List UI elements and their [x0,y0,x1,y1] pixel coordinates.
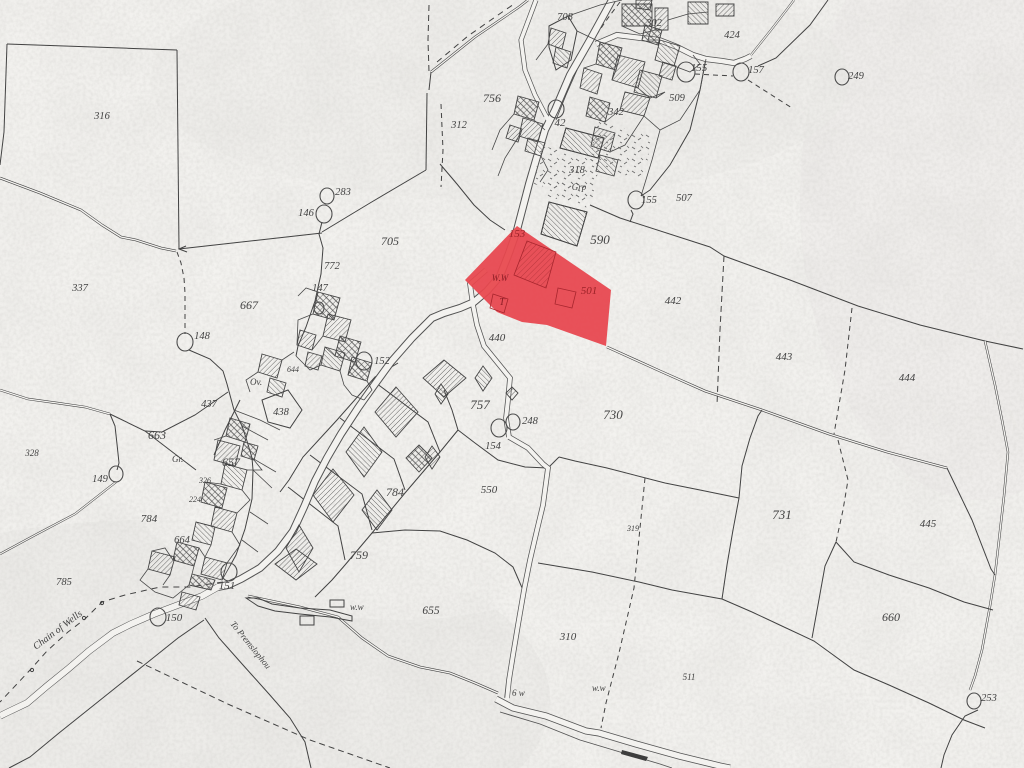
svg-text:507: 507 [676,193,693,204]
svg-text:6 w: 6 w [512,688,525,698]
svg-text:437: 437 [201,399,218,410]
svg-text:655: 655 [422,605,440,617]
svg-text:Ov.: Ov. [250,377,262,387]
svg-text:249: 249 [848,71,865,82]
svg-text:590: 590 [590,232,610,247]
svg-text:440: 440 [489,332,506,344]
svg-text:511: 511 [683,672,696,682]
svg-text:759: 759 [350,548,368,562]
svg-text:154: 154 [485,441,502,452]
svg-text:302: 302 [645,18,663,29]
svg-text:W.W: W.W [492,273,510,283]
svg-text:326: 326 [198,476,211,485]
svg-text:757: 757 [470,397,490,412]
svg-text:445: 445 [920,518,937,530]
svg-text:444: 444 [899,372,916,384]
svg-text:784: 784 [386,485,404,499]
svg-text:443: 443 [776,351,793,363]
svg-text:149: 149 [92,474,109,485]
svg-text:772: 772 [324,261,341,272]
svg-text:705: 705 [381,234,399,248]
svg-text:253: 253 [981,693,997,704]
svg-text:657: 657 [222,455,241,469]
svg-text:509: 509 [669,93,686,104]
svg-text:501: 501 [581,285,598,297]
svg-text:151: 151 [219,580,236,592]
svg-text:248: 248 [522,416,539,427]
svg-text:310: 310 [559,631,577,643]
svg-text:148: 148 [194,331,211,342]
svg-text:146: 146 [298,208,315,219]
svg-text:337: 337 [71,283,89,294]
svg-text:42: 42 [555,117,567,129]
svg-text:784: 784 [141,513,158,525]
svg-text:731: 731 [772,507,792,522]
svg-text:157: 157 [748,65,765,76]
svg-text:155: 155 [641,195,657,206]
svg-text:150: 150 [166,612,183,624]
svg-text:w.w: w.w [350,602,364,612]
svg-text:342: 342 [607,107,625,118]
svg-text:438: 438 [273,407,290,418]
svg-text:224: 224 [189,495,201,504]
svg-text:328: 328 [24,448,39,458]
svg-text:442: 442 [665,295,682,307]
svg-text:424: 424 [724,30,741,41]
svg-text:312: 312 [450,120,468,131]
svg-text:756: 756 [483,91,501,105]
svg-text:660: 660 [882,610,900,624]
svg-text:Grp: Grp [572,182,587,192]
svg-text:730: 730 [603,407,623,422]
svg-text:664: 664 [174,535,191,546]
svg-text:785: 785 [56,577,72,588]
svg-text:147: 147 [312,283,329,294]
svg-text:663: 663 [148,428,166,442]
svg-text:316: 316 [93,111,111,122]
svg-text:667: 667 [240,298,259,312]
svg-text:644: 644 [287,365,299,374]
svg-text:283: 283 [335,187,351,198]
svg-text:153: 153 [509,228,526,240]
svg-text:319: 319 [626,524,639,533]
svg-text:Gr.: Gr. [172,454,183,464]
svg-text:708: 708 [557,12,574,23]
svg-text:155: 155 [691,62,708,74]
svg-text:w.w: w.w [592,683,606,693]
svg-text:318: 318 [568,165,586,176]
svg-text:550: 550 [481,484,498,496]
svg-text:152: 152 [374,356,391,367]
